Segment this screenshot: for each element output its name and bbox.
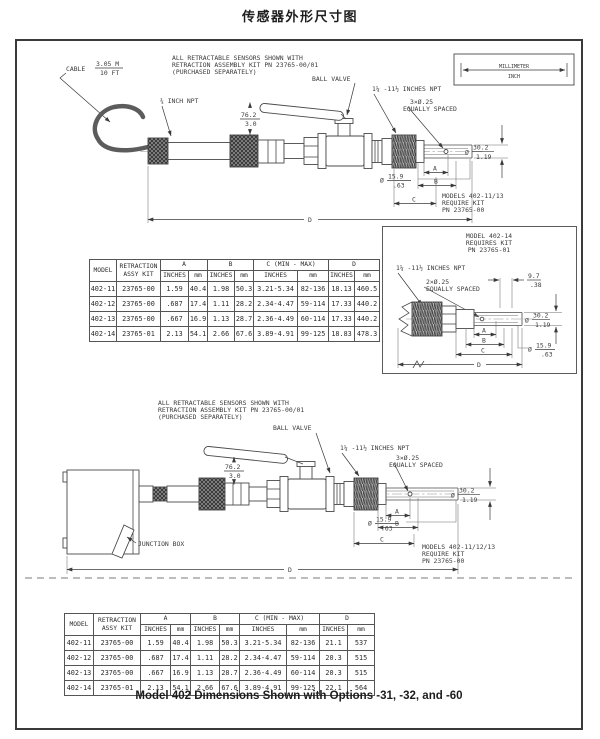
ball-valve-label: BALL VALVE: [273, 424, 312, 432]
cell: 82-136: [287, 636, 320, 651]
cell: 60-114: [287, 666, 320, 681]
th-mm: mm: [235, 271, 254, 282]
dia-outer-in: 1.19: [462, 496, 478, 504]
th-inches: INCHES: [141, 625, 171, 636]
cable-label: CABLE: [66, 65, 85, 73]
inset-dia-tip-mm: 15.9: [536, 342, 552, 350]
cell: 440.2: [355, 312, 380, 327]
cell: 20.3: [320, 666, 348, 681]
th-mm: mm: [355, 271, 380, 282]
cell: 1.13: [208, 312, 235, 327]
dia-tip-mm: 15.9: [388, 173, 404, 181]
th-kit-line1: RETRACTION: [98, 617, 136, 624]
dimension-table-2: MODEL RETRACTIONASSY KIT A B C (MIN - MA…: [64, 613, 375, 696]
inset-dia-tip-symbol: Ø: [528, 346, 532, 354]
dim-b-label: B: [395, 520, 399, 528]
cell: 2.36-4.49: [240, 666, 287, 681]
cell: 3.89-4.91: [254, 327, 298, 342]
cell: 16.9: [171, 666, 191, 681]
cell: 478.3: [355, 327, 380, 342]
npt-small-label: ¾ INCH NPT: [160, 97, 199, 105]
th-mm: mm: [287, 625, 320, 636]
inset-dim-d: D: [477, 361, 481, 369]
page-title: 传感器外形尺寸图: [0, 6, 600, 25]
cell: .687: [161, 297, 189, 312]
diagram-cable-sensor: ALL RETRACTABLE SENSORS SHOWN WITH RETRA…: [60, 54, 508, 224]
dia-outer-in: 1.19: [476, 153, 492, 161]
inset-dim-b: B: [482, 337, 486, 345]
th-inches: INCHES: [254, 271, 298, 282]
cell: 17.33: [329, 297, 355, 312]
dim-a-label: A: [433, 165, 437, 173]
units-legend: MILLIMETER INCH: [454, 54, 574, 85]
cable-length-ft: 10 FT: [100, 69, 119, 77]
cell: 3.21-5.34: [240, 636, 287, 651]
clearance-mm: 76.2: [225, 463, 241, 471]
cell: 28.2: [235, 297, 254, 312]
th-model: MODEL: [65, 614, 94, 636]
dia-tip-in: .63: [393, 182, 405, 190]
inset-dia-outer-symbol: Ø: [525, 317, 529, 325]
cable-length-mm: 3.05 M: [96, 60, 119, 68]
th-dim-b: B: [191, 614, 240, 625]
inset-dim-a: A: [482, 327, 486, 335]
th-mm: mm: [220, 625, 240, 636]
figure-caption: Model 402 Dimensions Shown with Options …: [17, 690, 581, 702]
cell: .687: [141, 651, 171, 666]
cell: 17.4: [189, 297, 208, 312]
dia-tip-symbol: Ø: [368, 520, 372, 528]
cell: 1.59: [161, 282, 189, 297]
cell-kit: 23765-00: [94, 636, 141, 651]
table-header-row: MODEL RETRACTIONASSY KIT A B C (MIN - MA…: [90, 260, 380, 271]
cell: .667: [161, 312, 189, 327]
diagram-junction-box-sensor: ALL RETRACTABLE SENSORS SHOWN WITH RETRA…: [63, 399, 496, 574]
cell: 460.5: [355, 282, 380, 297]
th-dim-c: C (MIN - MAX): [240, 614, 320, 625]
th-inches: INCHES: [161, 271, 189, 282]
drawing-frame: MILLIMETER INCH ALL RETRACTABLE SENSORS …: [15, 39, 583, 730]
dim-d-label: D: [288, 566, 292, 574]
th-dim-b: B: [208, 260, 254, 271]
table-row: 402-1223765-00.68717.41.1128.22.34-4.475…: [65, 651, 375, 666]
cell: 59-114: [287, 651, 320, 666]
models-note-3: PN 23765-00: [442, 206, 484, 214]
cell: 2.34-4.47: [240, 651, 287, 666]
th-inches: INCHES: [240, 625, 287, 636]
table-row: 402-1123765-001.5940.41.9850.33.21-5.348…: [65, 636, 375, 651]
th-retraction-kit: RETRACTIONASSY KIT: [117, 260, 161, 282]
cell-kit: 23765-00: [117, 297, 161, 312]
th-kit-line1: RETRACTION: [120, 263, 158, 270]
th-inches: INCHES: [191, 625, 220, 636]
cell: 1.59: [141, 636, 171, 651]
cell: 440.2: [355, 297, 380, 312]
cell: 1.11: [191, 651, 220, 666]
dimension-table-1: MODEL RETRACTIONASSY KIT A B C (MIN - MA…: [89, 259, 380, 342]
cell: 50.3: [235, 282, 254, 297]
probe-hole: [444, 150, 448, 154]
table-row: 402-1123765-001.5940.41.9850.33.21-5.348…: [90, 282, 380, 297]
inset-title-3: PN 23765-01: [468, 246, 510, 254]
cell: .667: [141, 666, 171, 681]
equally-spaced-label: EQUALLY SPACED: [403, 105, 457, 113]
th-kit-line2: ASSY KIT: [123, 271, 153, 278]
cell: 3.21-5.34: [254, 282, 298, 297]
cell: 82-136: [298, 282, 329, 297]
th-model: MODEL: [90, 260, 117, 282]
npt-large-label: 1¼ -11½ INCHES NPT: [340, 444, 409, 452]
note-line-3: (PURCHASED SEPARATELY): [158, 413, 243, 421]
inset-dim-c: C: [481, 347, 485, 355]
table-row: 402-1223765-00.68717.41.1128.22.34-4.475…: [90, 297, 380, 312]
inset-tip-in: .38: [530, 281, 542, 289]
cell: 18.83: [329, 327, 355, 342]
dia-outer-symbol: Ø: [465, 149, 469, 157]
inset-dia-tip-in: .63: [541, 351, 553, 359]
equally-spaced-label: EQUALLY SPACED: [389, 461, 443, 469]
cell-kit: 23765-00: [117, 312, 161, 327]
dia-tip-mm: 15.9: [376, 516, 392, 524]
th-retraction-kit: RETRACTIONASSY KIT: [94, 614, 141, 636]
cell: 28.2: [220, 651, 240, 666]
inset-tip-mm: 9.7: [528, 272, 540, 280]
inset-model-402-14: MODEL 402-14 REQUIRES KIT PN 23765-01 1¼…: [383, 227, 577, 374]
valve-handle: [203, 446, 287, 464]
th-inches: INCHES: [329, 271, 355, 282]
cell: 28.7: [220, 666, 240, 681]
cable-hook: [95, 106, 148, 150]
th-dim-c: C (MIN - MAX): [254, 260, 329, 271]
cell: 99-125: [298, 327, 329, 342]
cell: 2.13: [161, 327, 189, 342]
cell: 67.6: [235, 327, 254, 342]
th-dim-a: A: [141, 614, 191, 625]
dia-tip-symbol: Ø: [380, 177, 384, 185]
valve-handle: [259, 103, 343, 121]
cell: 515: [348, 666, 375, 681]
clearance-in: 3.0: [229, 472, 241, 480]
legend-millimeter-label: MILLIMETER: [499, 64, 530, 70]
probe-hole: [408, 492, 412, 496]
dim-a-label: A: [395, 508, 399, 516]
cell-kit: 23765-00: [117, 282, 161, 297]
legend-inch-label: INCH: [508, 74, 520, 80]
cell-model: 402-13: [65, 666, 94, 681]
th-dim-d: D: [320, 614, 375, 625]
inset-npt-label: 1¼ -11½ INCHES NPT: [396, 264, 465, 272]
cell-model: 402-11: [90, 282, 117, 297]
ball-valve-label: BALL VALVE: [312, 75, 351, 83]
cell: 20.3: [320, 651, 348, 666]
table-row: 402-1323765-00.66716.91.1328.72.36-4.496…: [65, 666, 375, 681]
table-row: 402-1423765-012.1354.12.6667.63.89-4.919…: [90, 327, 380, 342]
cell: 17.33: [329, 312, 355, 327]
process-fitting: [334, 478, 386, 510]
cell: 1.98: [191, 636, 220, 651]
cell-model: 402-12: [90, 297, 117, 312]
cell: 515: [348, 651, 375, 666]
cell: 54.1: [189, 327, 208, 342]
cell: 60-114: [298, 312, 329, 327]
sensor-assembly: [167, 478, 280, 510]
inset-dia-outer-in: 1.19: [535, 321, 551, 329]
process-fitting: [372, 135, 424, 168]
clearance-mm: 76.2: [241, 111, 257, 119]
th-kit-line2: ASSY KIT: [102, 625, 132, 632]
cell: 2.34-4.47: [254, 297, 298, 312]
th-dim-d: D: [329, 260, 380, 271]
cell: 28.7: [235, 312, 254, 327]
th-mm: mm: [298, 271, 329, 282]
th-dim-a: A: [161, 260, 208, 271]
dim-c-label: C: [412, 196, 416, 204]
cell-model: 402-12: [65, 651, 94, 666]
cell: 2.66: [208, 327, 235, 342]
npt-large-label: 1¼ -11½ INCHES NPT: [372, 85, 441, 93]
inset-dia-outer-mm: 30.2: [533, 312, 549, 320]
th-mm: mm: [348, 625, 375, 636]
cell-model: 402-14: [90, 327, 117, 342]
dia-outer-mm: 30.2: [459, 487, 475, 495]
th-mm: mm: [171, 625, 191, 636]
cell: 21.1: [320, 636, 348, 651]
table-header-row: MODEL RETRACTIONASSY KIT A B C (MIN - MA…: [65, 614, 375, 625]
cell: 40.4: [171, 636, 191, 651]
cell: 59-114: [298, 297, 329, 312]
cell: 1.11: [208, 297, 235, 312]
cell: 16.9: [189, 312, 208, 327]
cell: 1.13: [191, 666, 220, 681]
clearance-in: 3.0: [245, 120, 257, 128]
dim-c-label: C: [380, 536, 384, 544]
cell: 50.3: [220, 636, 240, 651]
cell-kit: 23765-01: [117, 327, 161, 342]
table-row: 402-1323765-00.66716.91.1328.72.36-4.496…: [90, 312, 380, 327]
dia-outer-mm: 30.2: [473, 144, 489, 152]
th-mm: mm: [189, 271, 208, 282]
dia-outer-symbol: Ø: [451, 492, 455, 500]
dim-d-label: D: [308, 216, 312, 224]
dia-tip-in: .63: [381, 525, 393, 533]
junction-box-label: JUNCTION BOX: [138, 540, 184, 548]
cell: 2.36-4.49: [254, 312, 298, 327]
cell-model: 402-11: [65, 636, 94, 651]
cell-kit: 23765-00: [94, 666, 141, 681]
th-inches: INCHES: [320, 625, 348, 636]
sensor-assembly: [148, 135, 318, 167]
cell-model: 402-13: [90, 312, 117, 327]
cell: 1.98: [208, 282, 235, 297]
inset-equally-spaced: EQUALLY SPACED: [426, 285, 480, 293]
th-inches: INCHES: [208, 271, 235, 282]
cell: 537: [348, 636, 375, 651]
cell: 40.4: [189, 282, 208, 297]
cell: 17.4: [171, 651, 191, 666]
cell-kit: 23765-00: [94, 651, 141, 666]
note-line-3: (PURCHASED SEPARATELY): [172, 68, 257, 76]
cell: 18.13: [329, 282, 355, 297]
